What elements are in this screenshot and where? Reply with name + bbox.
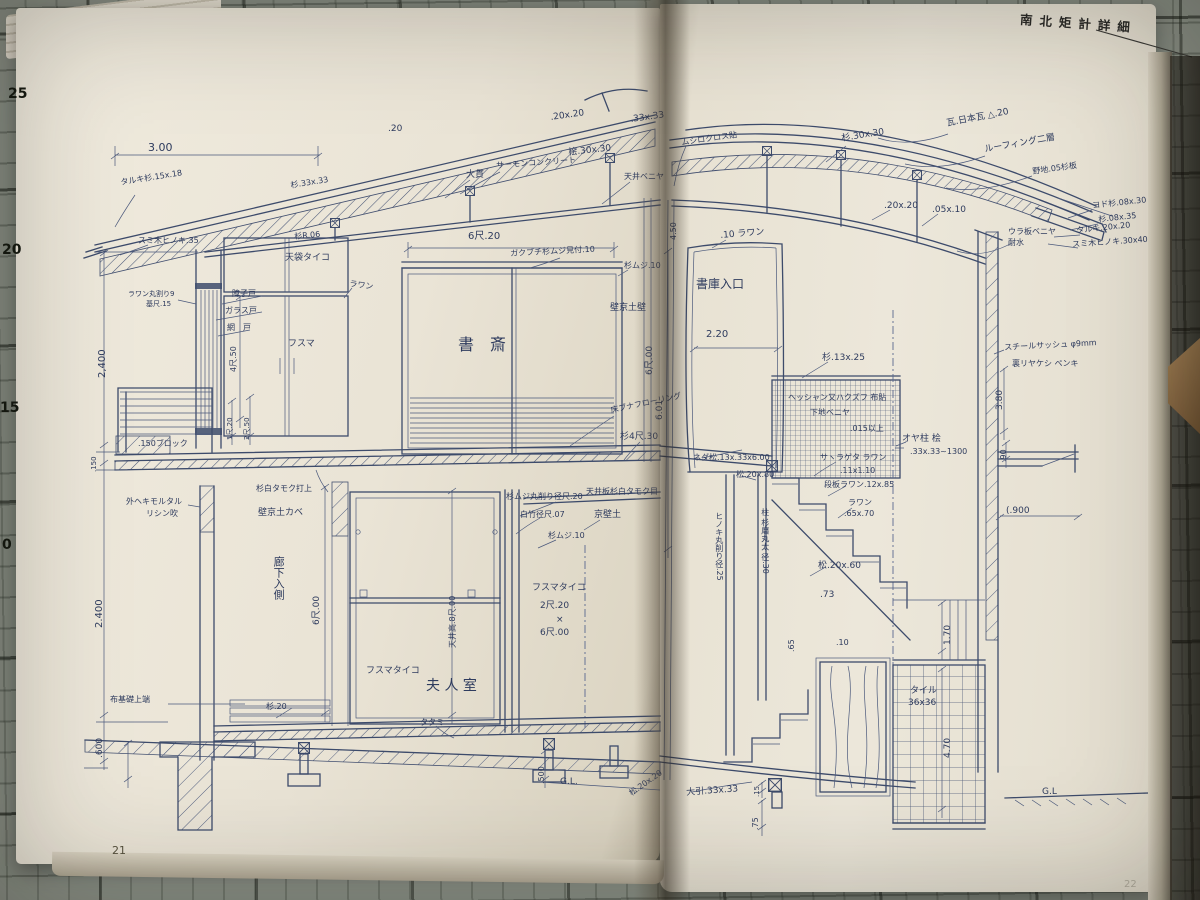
annotation: 壁京土カベ: [258, 509, 303, 519]
annotation: 杉ムジ.10: [548, 532, 585, 541]
book-fore-edge: [1148, 52, 1172, 900]
annotation: フスマタイコ: [366, 667, 420, 677]
annotation: 3.00: [148, 142, 173, 154]
annotation: .150: [91, 456, 99, 472]
annotation: .500: [538, 766, 547, 784]
annotation: 基尺.15: [146, 301, 171, 309]
annotation: 裏リヤケシ ペンキ: [1012, 360, 1079, 369]
annotation: .73: [820, 591, 834, 601]
annotation: .05x.10: [932, 206, 966, 216]
annotation: 網 戸: [227, 324, 251, 333]
right-wall-hatch: [986, 232, 998, 640]
tenbukuro-cabinet: [224, 238, 348, 292]
lower-steps: [724, 690, 808, 762]
annotation: 耐水: [1008, 239, 1024, 248]
page-number-right: 22: [1124, 879, 1137, 890]
room-label-stack-entrance: 書庫入口: [696, 278, 744, 291]
mortar-wall-hatch: [200, 486, 214, 532]
hanging-wall-hatch: [332, 482, 348, 536]
annotation: ラワン丸割り9: [128, 291, 174, 299]
annotation: タタミ: [420, 719, 444, 728]
annotation: 柱 杉磨丸太 径.30: [760, 508, 769, 574]
annotation: .150ブロック: [138, 440, 188, 449]
annotation: 6尺.00: [313, 596, 323, 625]
annotation: 布基礎上端: [110, 696, 150, 705]
annotation: フスマタイコ: [532, 584, 586, 594]
right-edge-shadow: [1170, 56, 1200, 900]
annotation: .015以上: [850, 425, 884, 434]
balcony-slats: [120, 392, 212, 434]
wood-grain-door: [820, 662, 886, 792]
room-label-wife-room: 夫 人 室: [426, 679, 477, 694]
annotation: ラワン: [848, 499, 872, 508]
roof-deck-hatch-right: [672, 154, 1052, 222]
annotation: .600: [96, 738, 106, 758]
annotation: .11x1.10: [840, 467, 875, 476]
annotation: ガラス戸: [225, 307, 257, 316]
book-gutter-shadow: [634, 0, 690, 900]
annotation: G.L: [1042, 788, 1057, 798]
section-drawing: [0, 0, 1200, 900]
bamboo-post-partition: [505, 490, 519, 732]
page-number-left: 21: [112, 845, 126, 857]
mat-ruler-number: 15: [0, 400, 19, 416]
annotation: 6尺.20: [468, 231, 500, 242]
annotation: ヒノキ丸削り径.25: [714, 512, 723, 581]
annotation: 天井高.8尺.00: [449, 596, 458, 648]
annotation: .33x.33~1300: [910, 448, 967, 457]
annotation: 2.20: [706, 329, 728, 340]
annotation: 杉白タモク打上: [256, 485, 312, 494]
annotation: タイル: [910, 687, 937, 697]
room-label-corridor: 廊下入側: [272, 556, 284, 600]
annotation: 2尺.20: [540, 602, 569, 612]
annotation: オヤ柱 桧: [902, 435, 941, 445]
annotation: 松.20x.80: [736, 471, 774, 480]
mat-ruler-number: 0: [2, 537, 12, 553]
annotation: ×: [556, 616, 564, 626]
annotation: ウラ板ベニヤ: [1008, 228, 1056, 237]
hinoki-post: [726, 475, 734, 755]
fusuma-panel-1f: [350, 492, 500, 724]
annotation: 杉.20: [266, 703, 287, 712]
photo-of-open-book: 3.00タルキ杉.15x.18杉.33x.33スミ木ヒノキ.35杉R.06天袋タ…: [0, 0, 1200, 900]
window-sill: [998, 445, 1078, 472]
annotation: .75: [752, 817, 761, 830]
annotation: 6尺.00: [540, 629, 569, 639]
annotation: 京壁土: [594, 511, 621, 521]
annotation: 2尺.50: [244, 417, 252, 440]
annotation: 大貫: [466, 171, 484, 181]
annotation: 36x36: [908, 699, 936, 709]
gl-line-right: [1005, 793, 1148, 798]
annotation: 1尺.20: [227, 417, 235, 440]
annotation: .65x.70: [844, 510, 874, 519]
annotation: ヘッシャン又ハクズフ 布貼: [788, 394, 886, 403]
annotation: .15: [754, 786, 762, 797]
annotation: G.L.: [560, 778, 578, 788]
annotation: ネダ松.13x.33x6.00: [693, 454, 770, 463]
mat-ruler-number: 25: [8, 86, 27, 102]
annotation: 下地ベニヤ: [810, 409, 850, 418]
annotation: 4尺.50: [230, 346, 239, 372]
annotation: 天袋タイコ: [285, 254, 330, 264]
annotation: 3.80: [996, 390, 1006, 410]
annotation: .90: [1000, 449, 1009, 462]
tile-shaft-grid: [893, 665, 985, 823]
annotation: フスマ: [288, 340, 315, 350]
annotation: 2,400: [97, 349, 108, 378]
annotation: 外ヘキモルタル: [126, 498, 182, 507]
annotation: 白竹径尺.07: [520, 511, 565, 520]
mat-ruler-number: 20: [2, 242, 21, 258]
annotation: サヽラゲタ ラワン: [820, 454, 887, 463]
sliding-door-stack: [201, 290, 217, 428]
staircase-steps: [772, 478, 907, 608]
annotation: 段板ラワン.12x.85: [824, 481, 894, 490]
corridor-door-frame: [332, 536, 348, 726]
panel-above-tile: [893, 600, 985, 660]
annotation: .20x.20: [884, 202, 918, 212]
wood-grain-lines: [831, 666, 880, 788]
annotation: スミ木ヒノキ.35: [138, 237, 199, 246]
annotation: .10: [836, 639, 849, 648]
annotation: 障子戸: [232, 290, 256, 299]
room-label-study: 書 斎: [458, 336, 506, 354]
annotation: (.900: [1006, 507, 1030, 517]
transom: [402, 262, 622, 268]
annotation: 4.70: [944, 738, 954, 758]
annotation: リシン吹: [146, 510, 178, 519]
annotation: .65: [788, 639, 797, 652]
annotation: .20: [388, 125, 402, 135]
annotation: 松.20x.60: [818, 562, 861, 572]
annotation: 杉.13x.25: [822, 354, 865, 364]
fusuma-closet: [224, 296, 348, 436]
annotation: 杉ムジ丸削り径尺.20: [506, 493, 583, 502]
foundation-hatch: [160, 742, 255, 830]
annotation: 1.70: [944, 625, 954, 645]
annotation: 2.400: [94, 599, 105, 628]
